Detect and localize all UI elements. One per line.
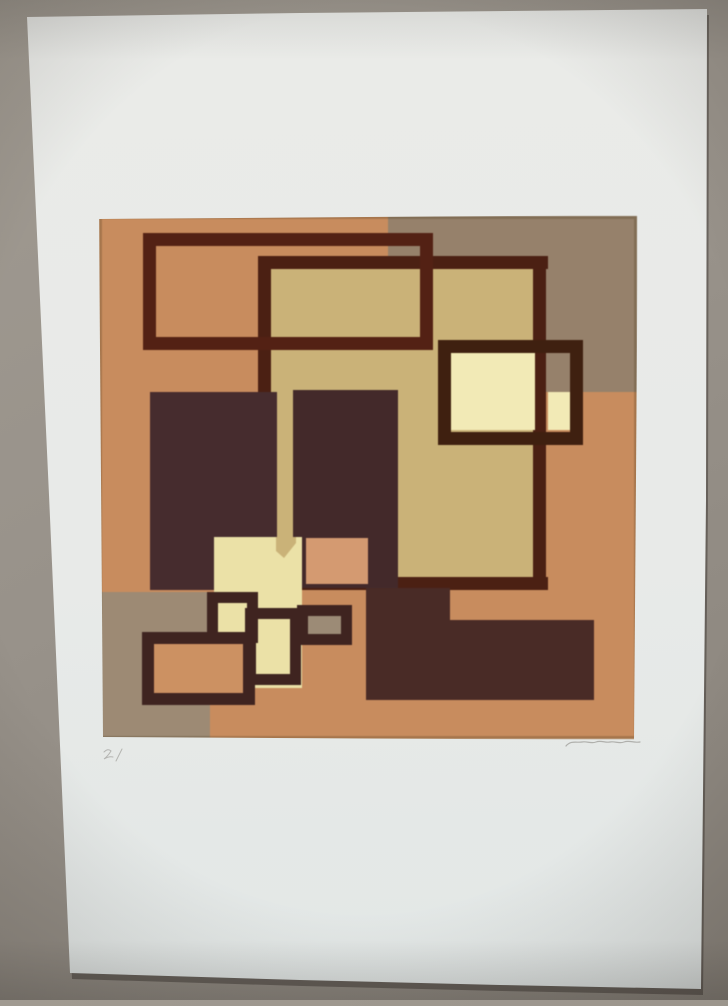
artist-signature-pencil xyxy=(566,741,640,746)
edition-mark-pencil xyxy=(104,749,122,761)
pencil-inscriptions xyxy=(0,0,728,1000)
photo-of-print: { "photo": { "background_color": "#98928… xyxy=(0,0,728,1000)
